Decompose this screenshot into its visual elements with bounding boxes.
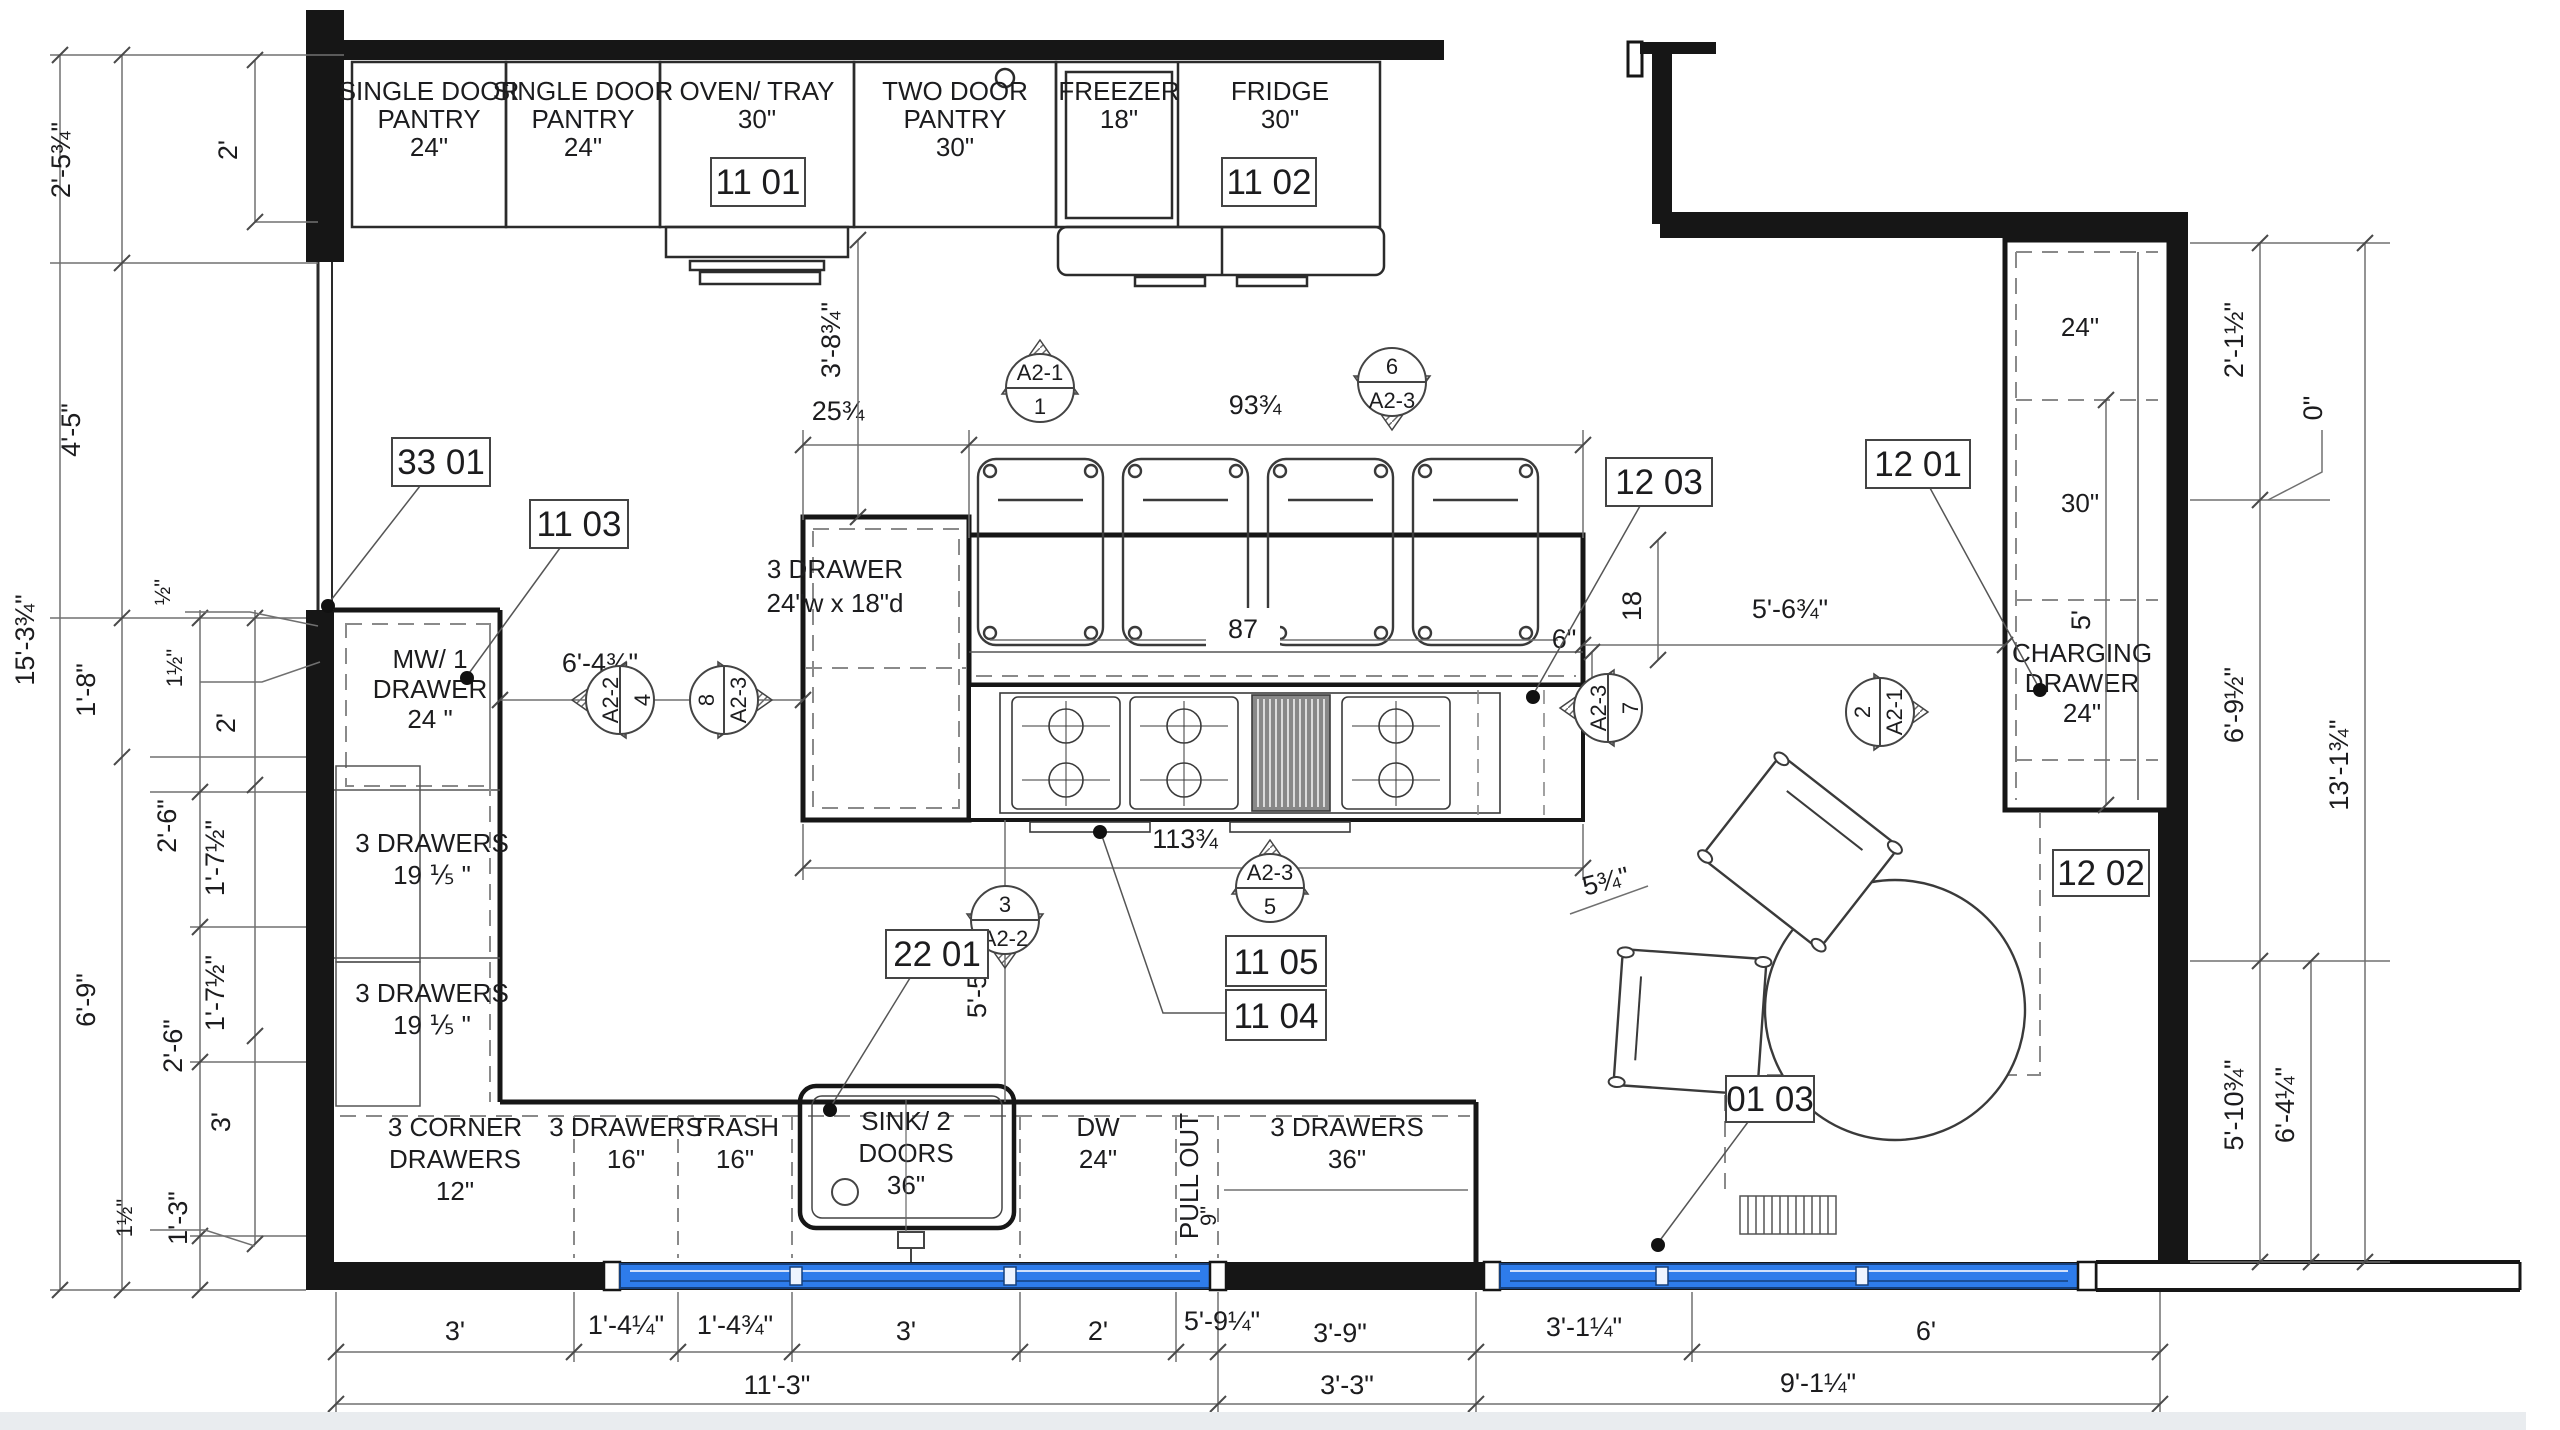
dim-25-3-4: 25¾ [812, 396, 865, 426]
svg-text:A2-3: A2-3 [726, 677, 751, 723]
fridge-appliance [1058, 227, 1384, 286]
dim-3-8-3-4: 3'-8¾" [816, 302, 846, 378]
dim-2-6-b: 2'-6" [158, 1019, 188, 1073]
dim-9-1-quarter: 9'-1¼" [1780, 1368, 1856, 1398]
page-right-margin [2526, 0, 2560, 1430]
svg-text:36": 36" [1328, 1144, 1366, 1174]
dim-5ft: 5' [2066, 610, 2096, 630]
svg-text:30": 30" [936, 132, 974, 162]
dim-1-8: 1'-8" [71, 663, 101, 717]
dim-1-7-half-a: 1'-7½" [200, 820, 230, 896]
svg-text:6: 6 [1386, 354, 1398, 379]
page-bottom-shade [0, 1412, 2560, 1430]
fridge-label: FRIDGE [1231, 76, 1329, 106]
dim-1-4-3-4: 1'-4¾" [697, 1310, 773, 1340]
svg-text:24"w x 18"d: 24"w x 18"d [767, 588, 904, 618]
upper-cabinet-labels: SINGLE DOOR PANTRY 24" SINGLE DOOR PANTR… [339, 76, 1329, 162]
svg-text:16": 16" [607, 1144, 645, 1174]
pantry2-label: SINGLE DOOR [493, 76, 674, 106]
dim-2ft-dw: 2' [1088, 1316, 1108, 1346]
dim-11-3: 11'-3" [744, 1370, 811, 1400]
dim-2-1-half: 2'-1½" [2219, 302, 2249, 378]
svg-text:A2-2: A2-2 [598, 677, 623, 723]
dim-half: ½" [150, 579, 175, 605]
svg-text:A2-3: A2-3 [1247, 860, 1293, 885]
svg-text:12": 12" [436, 1176, 474, 1206]
svg-text:5: 5 [1264, 894, 1276, 919]
dim-93-3-4: 93¾ [1229, 390, 1282, 420]
svg-text:24": 24" [564, 132, 602, 162]
svg-text:18": 18" [1100, 104, 1138, 134]
dim-6-4-quarter: 6'-4¼" [2270, 1067, 2300, 1143]
tag-33-01: 33 01 [397, 443, 485, 482]
freezer-label: FREEZER [1058, 76, 1179, 106]
oven-appliance [666, 227, 848, 284]
island-block-label: 3 DRAWER [767, 554, 903, 584]
dim-6-9-half: 6'-9½" [2219, 667, 2249, 743]
left-3drawers-1-label: 3 DRAWERS [355, 828, 509, 858]
dishwasher-label: DW [1076, 1112, 1120, 1142]
svg-text:24 ": 24 " [407, 704, 452, 734]
window-dining-wall [1484, 1262, 2096, 1290]
drawers36-label: 3 DRAWERS [1270, 1112, 1424, 1142]
dim-3-3: 3'-3" [1320, 1370, 1374, 1400]
svg-text:19 ⅕ ": 19 ⅕ " [393, 1010, 471, 1040]
svg-text:24": 24" [1079, 1144, 1117, 1174]
dim-5-3-4: 5¾" [1579, 861, 1632, 902]
svg-text:A2-1: A2-1 [1882, 689, 1907, 735]
dining-area [1608, 750, 2040, 1234]
tag-12-01: 12 01 [1874, 445, 1962, 484]
svg-text:1: 1 [1034, 394, 1046, 419]
svg-text:A2-3: A2-3 [1586, 685, 1611, 731]
dim-3-9: 3'-9" [1313, 1318, 1367, 1348]
dim-6-9: 6'-9" [71, 973, 101, 1027]
marker-a2-1-2: A2-1 2 [1846, 674, 1928, 750]
dim-4-5: 4'-5" [56, 403, 86, 457]
dim-5-10-3-4: 5'-10¾" [2219, 1059, 2249, 1150]
svg-text:A2-3: A2-3 [1369, 388, 1415, 413]
right-run-24-label: 24" [2061, 312, 2099, 342]
center-griddle [1252, 695, 1330, 811]
right-run-30-label: 30" [2061, 488, 2099, 518]
tag-12-02: 12 02 [2057, 854, 2145, 893]
tag-22-01: 22 01 [893, 935, 981, 974]
charging-drawer-label: CHARGING [2012, 638, 2152, 668]
dim-18: 18 [1617, 591, 1647, 621]
dim-13-1-3-4: 13'-1¾" [2324, 719, 2354, 810]
tag-01-03: 01 03 [1726, 1080, 1814, 1119]
corner-drawers-label: 3 CORNER [388, 1112, 522, 1142]
dim-2-5-3-4: 2'-5¾" [46, 122, 76, 198]
tag-11-03: 11 03 [537, 505, 622, 544]
svg-text:PANTRY: PANTRY [377, 104, 480, 134]
right-cabinet-run: 24" 30" CHARGING DRAWER 24" 5' [2005, 240, 2169, 813]
svg-text:24": 24" [2063, 698, 2101, 728]
svg-text:16": 16" [716, 1144, 754, 1174]
floor-vent [1740, 1196, 1836, 1234]
dining-chair-2 [1608, 947, 1771, 1097]
svg-text:DRAWERS: DRAWERS [389, 1144, 521, 1174]
window-sink-wall [604, 1262, 1226, 1290]
dim-5-6-3-4: 5'-6¾" [1752, 594, 1828, 624]
left-cabinet-run: MW/ 1 DRAWER 24 " 3 DRAWERS 19 ⅕ " 3 DRA… [334, 610, 509, 1106]
dim-2-6-a: 2'-6" [152, 799, 182, 853]
dim-3ft-left: 3' [206, 1112, 236, 1132]
marker-6-a2-3: 6 A2-3 [1354, 348, 1430, 430]
dim-3ft-b: 3' [896, 1316, 916, 1346]
dim-3-1-quarter: 3'-1¼" [1546, 1312, 1622, 1342]
dimension-text-right: 2'-1½" 0" 6'-9½" 13'-1¾" 5'-10¾" 6'-4¼" [2219, 302, 2354, 1151]
svg-text:19 ⅕ ": 19 ⅕ " [393, 860, 471, 890]
marker-a2-3-5: A2-3 5 [1232, 840, 1308, 922]
island: 3 DRAWER 24"w x 18"d [767, 459, 1583, 832]
svg-text:24": 24" [410, 132, 448, 162]
dimension-text-left: 2'-5¾" 2' 4'-5" ½" 1½" 1'-8" 2' 15'-3¾" … [10, 122, 243, 1245]
svg-text:3: 3 [999, 892, 1011, 917]
dim-1-half-b: 1½" [112, 1199, 137, 1237]
dim-3ft-a: 3' [445, 1316, 465, 1346]
svg-text:30": 30" [1261, 104, 1299, 134]
svg-text:PANTRY: PANTRY [903, 104, 1006, 134]
svg-text:4: 4 [630, 694, 655, 706]
marker-a2-1-1: A2-1 1 [1002, 340, 1078, 422]
dim-2ft-top: 2' [213, 140, 243, 160]
tag-11-02: 11 02 [1227, 163, 1312, 202]
svg-text:2: 2 [1850, 706, 1875, 718]
dim-1-3: 1'-3" [163, 1191, 193, 1245]
oven-label: OVEN/ TRAY [679, 76, 834, 106]
kitchen-floor-plan-canvas: SINGLE DOOR PANTRY 24" SINGLE DOOR PANTR… [0, 0, 2560, 1430]
trash-label: TRASH [691, 1112, 779, 1142]
pullout-depth: 9" [1196, 1206, 1221, 1226]
tag-11-04: 11 04 [1234, 997, 1319, 1036]
dimension-text-bottom: 3' 1'-4¼" 1'-4¾" 3' 2' 5'-9¼" 3'-9" 3'-1… [445, 1306, 1936, 1400]
dim-113-3-4: 113¾ [1152, 824, 1218, 854]
dim-1-7-half-b: 1'-7½" [200, 955, 230, 1031]
svg-text:7: 7 [1618, 702, 1643, 714]
dim-5-9-quarter: 5'-9¼" [1184, 1306, 1260, 1336]
floor-plan-drawing: SINGLE DOOR PANTRY 24" SINGLE DOOR PANTR… [0, 0, 2560, 1430]
dim-zero: 0" [2298, 396, 2328, 421]
svg-text:PANTRY: PANTRY [531, 104, 634, 134]
dim-87: 87 [1228, 614, 1258, 644]
dim-1-4-quarter: 1'-4¼" [588, 1310, 664, 1340]
svg-text:30": 30" [738, 104, 776, 134]
mw-drawer-label: MW/ 1 [392, 644, 467, 674]
svg-text:A2-1: A2-1 [1017, 360, 1063, 385]
tag-11-05: 11 05 [1234, 943, 1319, 982]
bottom-cabinet-run: 3 CORNER DRAWERS 12" 3 DRAWERS 16" TRASH… [340, 1086, 1476, 1262]
dim-6ft: 6' [1916, 1316, 1936, 1346]
tag-11-01: 11 01 [716, 163, 801, 202]
drawers16-label: 3 DRAWERS [549, 1112, 703, 1142]
tag-12-03: 12 03 [1615, 463, 1703, 502]
marker-a2-3-8: A2-3 8 [690, 662, 772, 738]
svg-text:8: 8 [694, 694, 719, 706]
two-door-pantry-label: TWO DOOR [882, 76, 1028, 106]
left-3drawers-2-label: 3 DRAWERS [355, 978, 509, 1008]
dim-overall-left: 15'-3¾" [10, 594, 40, 685]
dim-2ft-mw: 2' [211, 713, 241, 733]
dim-1-half: 1½" [162, 649, 187, 687]
